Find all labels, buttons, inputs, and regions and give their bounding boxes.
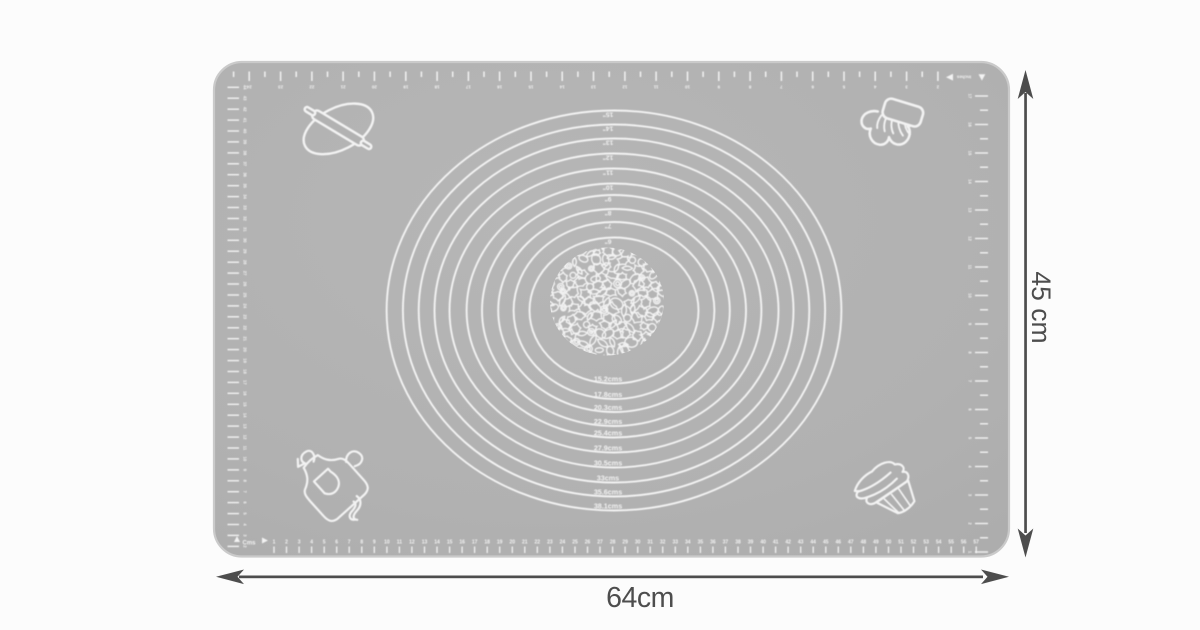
svg-text:18: 18	[242, 369, 247, 374]
svg-text:12: 12	[622, 85, 628, 90]
svg-text:21: 21	[242, 336, 247, 341]
svg-text:15.2cms: 15.2cms	[594, 374, 622, 383]
svg-text:16: 16	[497, 85, 503, 90]
svg-text:38: 38	[735, 540, 741, 546]
svg-text:31: 31	[242, 227, 247, 232]
svg-text:30.5cms: 30.5cms	[594, 458, 622, 467]
svg-text:40: 40	[760, 540, 766, 546]
svg-text:42: 42	[242, 107, 247, 112]
svg-text:25: 25	[572, 540, 578, 546]
svg-text:18: 18	[484, 540, 490, 546]
svg-text:7": 7"	[604, 222, 611, 229]
svg-text:15: 15	[447, 540, 453, 546]
svg-text:Cms: Cms	[242, 541, 256, 547]
svg-text:11: 11	[967, 265, 972, 270]
svg-text:20: 20	[510, 540, 516, 546]
svg-text:4: 4	[310, 540, 313, 546]
svg-text:13: 13	[422, 540, 428, 546]
svg-text:6": 6"	[604, 237, 611, 244]
svg-text:15: 15	[242, 402, 247, 407]
svg-text:53: 53	[923, 540, 929, 546]
svg-text:13: 13	[591, 85, 597, 90]
svg-text:33: 33	[242, 205, 247, 210]
svg-text:20.3cms: 20.3cms	[594, 403, 622, 412]
svg-text:10: 10	[384, 540, 390, 546]
svg-text:45 cm: 45 cm	[1026, 271, 1056, 343]
svg-text:27.9cms: 27.9cms	[594, 443, 622, 452]
svg-text:31: 31	[647, 540, 653, 546]
svg-text:55: 55	[948, 540, 954, 546]
svg-text:10: 10	[967, 293, 972, 298]
svg-text:56: 56	[961, 540, 967, 546]
svg-text:8: 8	[360, 540, 363, 546]
svg-text:15: 15	[967, 151, 972, 156]
svg-text:13: 13	[242, 424, 247, 429]
svg-text:36: 36	[710, 540, 716, 546]
svg-text:2: 2	[285, 540, 288, 546]
svg-text:46: 46	[836, 540, 842, 546]
svg-text:17: 17	[967, 94, 972, 99]
svg-text:24: 24	[242, 304, 247, 309]
svg-text:11: 11	[242, 446, 247, 451]
svg-text:28: 28	[610, 540, 616, 546]
svg-text:8": 8"	[604, 209, 611, 216]
svg-text:6: 6	[335, 540, 338, 546]
svg-text:9": 9"	[604, 195, 611, 202]
svg-text:9: 9	[373, 540, 376, 546]
svg-text:30: 30	[242, 238, 247, 243]
svg-text:12: 12	[242, 435, 247, 440]
svg-text:7: 7	[348, 540, 351, 546]
svg-text:22: 22	[242, 325, 247, 330]
svg-text:33cms: 33cms	[597, 473, 619, 482]
svg-text:26: 26	[585, 540, 591, 546]
svg-text:12": 12"	[603, 153, 614, 160]
svg-text:3: 3	[298, 540, 301, 546]
svg-text:25.4cms: 25.4cms	[594, 428, 622, 437]
svg-text:44: 44	[242, 85, 247, 90]
svg-text:64cm: 64cm	[606, 582, 674, 614]
svg-text:25: 25	[242, 293, 247, 298]
svg-text:43: 43	[242, 96, 247, 101]
svg-text:11: 11	[653, 85, 658, 90]
svg-text:37: 37	[723, 540, 729, 546]
svg-text:48: 48	[861, 540, 867, 546]
svg-text:12: 12	[409, 540, 415, 546]
svg-text:12: 12	[967, 236, 972, 241]
svg-text:10: 10	[685, 85, 691, 90]
svg-text:49: 49	[873, 540, 879, 546]
svg-text:41: 41	[773, 540, 779, 546]
svg-text:42: 42	[785, 540, 791, 546]
svg-text:41: 41	[242, 118, 247, 123]
svg-text:33: 33	[673, 540, 679, 546]
svg-text:34: 34	[685, 540, 691, 546]
svg-text:22.9cms: 22.9cms	[594, 417, 622, 426]
svg-text:47: 47	[848, 540, 854, 546]
svg-text:23: 23	[547, 540, 553, 546]
svg-text:32: 32	[242, 216, 247, 221]
svg-text:35.6cms: 35.6cms	[594, 487, 622, 496]
svg-text:5: 5	[323, 540, 326, 546]
svg-text:15": 15"	[603, 111, 614, 118]
svg-text:19: 19	[497, 540, 503, 546]
svg-text:51: 51	[898, 540, 904, 546]
svg-text:10": 10"	[603, 183, 614, 190]
svg-text:20: 20	[242, 347, 247, 352]
svg-text:21: 21	[522, 540, 528, 546]
svg-text:29: 29	[242, 249, 247, 254]
svg-text:14: 14	[559, 85, 565, 90]
svg-text:14: 14	[967, 179, 972, 184]
svg-text:29: 29	[622, 540, 628, 546]
svg-text:17: 17	[242, 380, 247, 385]
svg-text:38: 38	[242, 151, 247, 156]
svg-text:13": 13"	[603, 138, 614, 145]
svg-text:23: 23	[278, 85, 284, 90]
svg-text:1: 1	[273, 540, 276, 546]
svg-text:27: 27	[597, 540, 603, 546]
svg-text:22: 22	[535, 540, 541, 546]
svg-text:39: 39	[748, 540, 754, 546]
svg-text:17: 17	[472, 540, 478, 546]
svg-text:37: 37	[242, 161, 247, 166]
svg-text:30: 30	[635, 540, 641, 546]
svg-text:14: 14	[434, 540, 440, 546]
svg-text:14: 14	[242, 413, 247, 418]
svg-text:32: 32	[660, 540, 666, 546]
svg-text:45: 45	[823, 540, 829, 546]
svg-text:14": 14"	[603, 124, 614, 131]
svg-text:57: 57	[973, 540, 979, 546]
svg-text:13: 13	[967, 208, 972, 213]
svg-text:43: 43	[798, 540, 804, 546]
svg-text:16: 16	[459, 540, 465, 546]
svg-text:17: 17	[465, 85, 471, 90]
svg-text:24: 24	[560, 540, 566, 546]
svg-text:11": 11"	[603, 168, 613, 175]
svg-text:23: 23	[242, 314, 247, 319]
svg-text:34: 34	[242, 194, 247, 199]
svg-text:28: 28	[242, 260, 247, 265]
svg-text:16: 16	[967, 122, 972, 127]
svg-text:10: 10	[242, 457, 247, 462]
svg-text:18: 18	[434, 85, 440, 90]
svg-text:19: 19	[403, 85, 409, 90]
svg-text:27: 27	[242, 271, 247, 276]
svg-text:15: 15	[528, 85, 534, 90]
svg-text:52: 52	[911, 540, 917, 546]
svg-text:16: 16	[242, 391, 247, 396]
svg-text:11: 11	[397, 540, 403, 546]
svg-text:20: 20	[371, 85, 377, 90]
svg-text:39: 39	[242, 140, 247, 145]
svg-text:21: 21	[340, 85, 346, 90]
svg-text:22: 22	[309, 85, 315, 90]
svg-text:26: 26	[242, 282, 247, 287]
svg-text:35: 35	[698, 540, 704, 546]
svg-text:Inches: Inches	[956, 75, 971, 80]
svg-text:35: 35	[242, 183, 247, 188]
svg-text:36: 36	[242, 172, 247, 177]
svg-text:19: 19	[242, 358, 247, 363]
svg-text:54: 54	[936, 540, 942, 546]
svg-text:40: 40	[242, 129, 247, 134]
svg-text:38.1cms: 38.1cms	[594, 501, 622, 510]
svg-text:50: 50	[886, 540, 892, 546]
svg-text:44: 44	[810, 540, 816, 546]
svg-text:17.8cms: 17.8cms	[594, 390, 622, 399]
